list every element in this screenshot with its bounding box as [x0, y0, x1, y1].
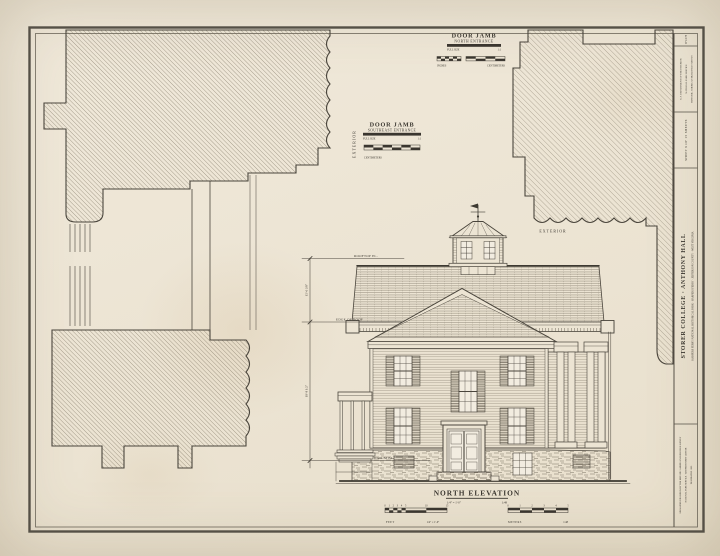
basement-window-right [513, 453, 532, 475]
service-line: NATIONAL PARK SERVICE [685, 64, 688, 94]
centimeters-scale-bar [364, 145, 420, 150]
credit-line-1: MEASURED DRAWINGS BY THE HISTORIC AMERIC… [679, 436, 682, 513]
scale-note-left: FULL SIZE [447, 49, 460, 52]
centimeters-scale-bar [466, 57, 505, 61]
feet-label: FEET [386, 520, 395, 524]
window-lower-left [386, 408, 420, 444]
elevation-title: NORTH ELEVATION [434, 489, 521, 498]
exterior-label: EXTERIOR [352, 130, 356, 158]
sheet-title: STORER COLLEGE · ANTHONY HALL [681, 234, 687, 359]
inches-scale-bar [437, 57, 461, 61]
edge-of-roof-annotation: EDGE OF ROOF [336, 318, 363, 322]
dimension-lower: 18'-8 1/2" [305, 384, 309, 397]
scale-note-left: FULL SIZE [363, 138, 376, 141]
scale-note-right: 1:1 [418, 138, 422, 141]
credit-line-3: DELINEATED 1999 [690, 466, 693, 484]
north-jamb-detail-title: DOOR JAMB NORTH ENTRANCE FULL SIZE 1:1 I… [437, 33, 506, 68]
svg-text:15: 15 [446, 505, 449, 508]
drawing-canvas: EXTERIOR DOOR JAMB NORTH ENTRANCE FULL S… [0, 0, 720, 556]
svg-text:2: 2 [531, 505, 533, 508]
sheet-info: SHEET 9 OF 15 SHEETS [684, 119, 688, 161]
svg-text:1: 1 [388, 505, 390, 508]
svg-text:3: 3 [397, 505, 399, 508]
detail-subtitle: NORTH ENTRANCE [454, 40, 494, 44]
southeast-jamb-detail-title: DOOR JAMB SOUTHEAST ENTRANCE FULL SIZE 1… [352, 122, 421, 160]
detail-title: DOOR JAMB [370, 122, 415, 129]
meters-scale-bar: 01 23 45 METERS 1:48 [507, 505, 569, 524]
meters-label: METERS [508, 520, 522, 524]
exterior-label: EXTERIOR [539, 230, 566, 234]
weathervane-flag-icon [470, 204, 478, 209]
elevation-title-block: NORTH ELEVATION 1/4" = 1'-0" 1:48 01 23 … [384, 489, 569, 524]
jamb-section-top-left [44, 30, 330, 222]
credits-cell: MEASURED DRAWINGS BY THE HISTORIC AMERIC… [679, 436, 693, 513]
svg-text:4: 4 [401, 505, 403, 508]
basement-vent-right [573, 455, 590, 468]
svg-text:5: 5 [567, 505, 569, 508]
cupola-base-band [449, 263, 507, 266]
agency-cell: U.S. DEPARTMENT OF THE INTERIOR NATIONAL… [680, 55, 694, 103]
side-wing-wall [548, 352, 605, 448]
window-lower-right [500, 408, 534, 444]
window-upper-center [451, 371, 485, 412]
dept-line: U.S. DEPARTMENT OF THE INTERIOR [680, 58, 683, 100]
scale-rule [363, 133, 421, 136]
centimeters-label: CENTIMETERS [487, 65, 505, 68]
cupola-body [453, 238, 503, 263]
meters-scale-note: 1:48 [563, 521, 568, 524]
svg-text:2: 2 [393, 505, 395, 508]
jamb-section-lower-left [52, 330, 250, 468]
cupola [449, 204, 507, 275]
sheet-title-cell: STORER COLLEGE · ANTHONY HALL HARPERS FE… [681, 231, 695, 360]
svg-text:4: 4 [555, 505, 557, 508]
detail-title: DOOR JAMB [452, 33, 497, 40]
centimeters-label: CENTIMETERS [364, 157, 382, 160]
svg-text:10: 10 [425, 505, 428, 508]
window-upper-right [500, 356, 534, 386]
stone-stoop [437, 472, 491, 481]
survey-number: WV-179 [685, 34, 688, 44]
inches-label: INCHES [437, 65, 447, 68]
survey-line: HISTORIC AMERICAN BUILDINGS SURVEY [691, 55, 694, 103]
ground-line [336, 481, 630, 484]
detail-subtitle: SOUTHEAST ENTRANCE [368, 129, 417, 133]
dimension-upper: 15'-6 3/8" [305, 283, 309, 296]
elevation-scale-note-left: 1/4" = 1'-0" [447, 501, 462, 505]
svg-text:3: 3 [543, 505, 545, 508]
building-elevation: ROOFTOP EL. EDGE OF ROOF DATUM EL. 15'-6… [302, 204, 630, 484]
window-upper-left [386, 356, 420, 386]
feet-scale-note: 1/4" = 1'-0" [427, 521, 440, 524]
scanned-drawing-sheet: EXTERIOR DOOR JAMB NORTH ENTRANCE FULL S… [0, 0, 720, 556]
corner-board [545, 349, 548, 449]
svg-text:0: 0 [507, 505, 509, 508]
datum-annotation: DATUM EL. [374, 456, 394, 460]
feet-scale-bar: 01 23 45 1015 FEET 1/4" = 1'-0" [384, 505, 449, 524]
scale-rule [447, 44, 501, 47]
sheet-subtitle: HARPERS FERRY NATIONAL HISTORICAL PARK ·… [692, 231, 695, 360]
credit-line-2: NATIONAL PARK SERVICE · HARPERS FERRY CE… [685, 447, 688, 502]
titleblock-strip: WV-179 U.S. DEPARTMENT OF THE INTERIOR N… [674, 34, 698, 528]
svg-text:5: 5 [405, 505, 407, 508]
svg-text:0: 0 [384, 505, 386, 508]
scale-note-right: 1:1 [498, 49, 502, 52]
rooftop-annotation: ROOFTOP EL. [354, 254, 378, 258]
svg-text:1: 1 [519, 505, 521, 508]
basement-window-left [394, 456, 414, 468]
